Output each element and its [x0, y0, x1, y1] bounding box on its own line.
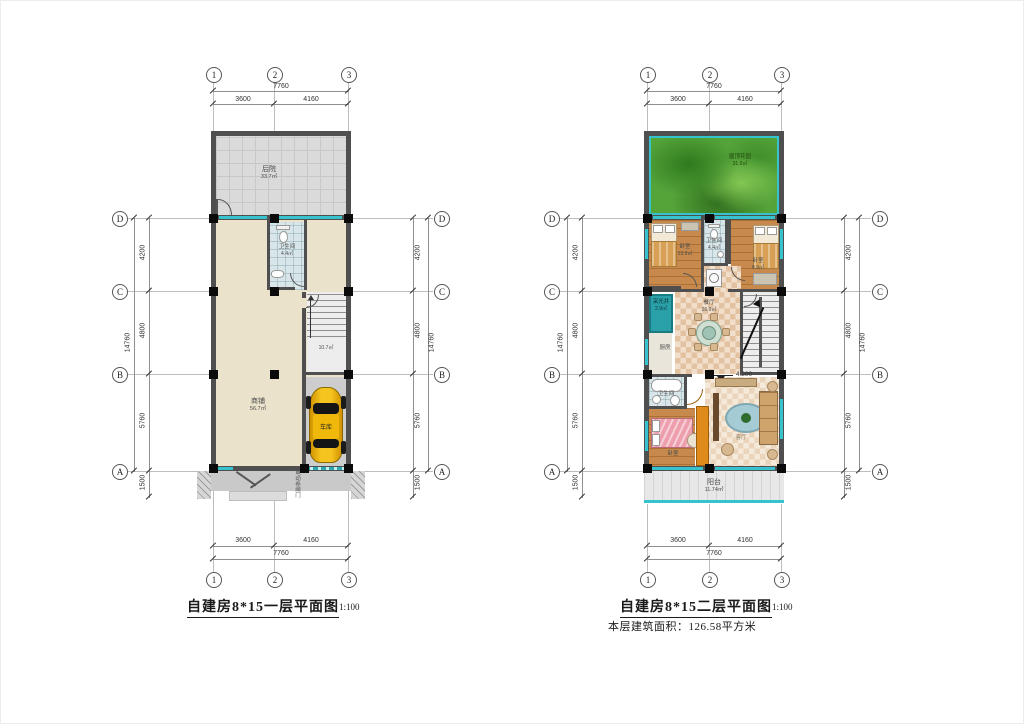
armchair [721, 443, 734, 456]
chair [694, 343, 702, 351]
dim-text: 14760 [429, 328, 436, 358]
ground-hatch [351, 471, 365, 499]
chair [688, 328, 696, 336]
kitchen-floor [649, 333, 672, 374]
chair [710, 343, 718, 351]
grid-line [559, 218, 644, 219]
grid-bubble-row: B [872, 367, 888, 383]
dim-line [213, 91, 349, 92]
grid-line [781, 504, 782, 572]
car-wheel [341, 441, 346, 454]
dim-text: 3600 [670, 96, 686, 103]
wall [211, 131, 216, 471]
toilet-bowl [279, 231, 288, 243]
structural-column [209, 464, 218, 473]
car-roof: 车库 [313, 414, 339, 439]
window [715, 467, 775, 470]
porch [211, 471, 351, 491]
dim-text: 4200 [573, 238, 580, 268]
grid-bubble-row: A [434, 464, 450, 480]
structural-column [344, 464, 353, 473]
grid-bubble-row: A [544, 464, 560, 480]
garage-label: 车库 [320, 422, 332, 431]
wall [267, 220, 270, 290]
entry-step [229, 491, 287, 501]
structural-column [777, 464, 786, 473]
car-wheel [341, 396, 346, 409]
structural-column [270, 214, 279, 223]
window [219, 216, 267, 219]
window [218, 467, 233, 470]
room-label-bath1: 卫生间 4.4㎡ [706, 238, 723, 252]
car-wheel [306, 441, 311, 454]
grid-bubble-col: 1 [640, 572, 656, 588]
grid-bubble-col: 1 [206, 572, 222, 588]
wall [704, 263, 725, 266]
backyard-floor [216, 136, 346, 216]
dim-text: 5760 [140, 406, 147, 436]
wall [644, 131, 649, 471]
dim-line [149, 218, 150, 498]
window [653, 216, 701, 219]
dim-text: 4160 [737, 96, 753, 103]
structural-column [300, 464, 309, 473]
dim-text: 5760 [846, 406, 853, 436]
room-label-bath: 卫生间 4.4㎡ [279, 244, 296, 258]
grid-bubble-row: D [434, 211, 450, 227]
wall [728, 220, 731, 264]
wardrobe [681, 222, 699, 231]
car-rear-window [313, 439, 339, 448]
dim-text: 7760 [273, 83, 289, 90]
grid-bubble-row: A [872, 464, 888, 480]
room-label-lightwell: 采光井 2.9㎡ [653, 299, 670, 313]
structural-column [643, 370, 652, 379]
sink [717, 251, 724, 258]
grid-bubble-row: D [872, 211, 888, 227]
plant [741, 413, 751, 423]
dim-text: 4800 [415, 316, 422, 346]
floor-plan-sheet: 7760 3600 4160 3600 4160 7760 4200 4800 … [0, 0, 1024, 724]
grid-line [784, 374, 871, 375]
dim-text: 4160 [303, 537, 319, 544]
level-marker-line [711, 375, 733, 376]
armchair [767, 381, 778, 392]
dim-text: 7760 [706, 550, 722, 557]
structural-column [209, 214, 218, 223]
tv-cabinet [713, 393, 719, 441]
room-label-stair: 10.7㎡ [319, 345, 334, 352]
dim-line [567, 218, 568, 472]
dim-text: 3600 [235, 96, 251, 103]
window [715, 216, 775, 219]
grid-line [127, 291, 211, 292]
plan2-title: 自建房8*15二层平面图 [620, 596, 772, 618]
grid-bubble-row: C [434, 284, 450, 300]
dim-line [582, 218, 583, 498]
dim-text: 3600 [670, 537, 686, 544]
grid-line [351, 218, 433, 219]
wall [728, 289, 784, 292]
pillow [767, 227, 777, 235]
dim-text: 14760 [860, 328, 867, 358]
pillow [653, 225, 663, 233]
balcony-railing [644, 500, 784, 503]
dim-line [213, 559, 349, 560]
structural-column [705, 370, 714, 379]
dim-text: 3600 [235, 537, 251, 544]
structural-column [344, 370, 353, 379]
grid-bubble-row: C [544, 284, 560, 300]
dim-tick [579, 493, 586, 500]
grid-bubble-row: C [872, 284, 888, 300]
grid-bubble-col: 3 [341, 67, 357, 83]
chair [694, 313, 702, 321]
dim-text: 4800 [573, 316, 580, 346]
toilet [708, 224, 720, 228]
room-label-bed3: 卧室 [667, 451, 678, 458]
pillow [665, 225, 675, 233]
window [651, 467, 703, 470]
structural-column [705, 287, 714, 296]
room-label-bed1: 卧室 13.9㎡ [678, 244, 693, 258]
wall [644, 289, 704, 292]
wall [740, 292, 743, 374]
grid-bubble-col: 2 [267, 572, 283, 588]
armchair [767, 449, 778, 460]
room-label-kitchen: 厨房 [659, 345, 670, 352]
room-label-bath2: 卫生间 [658, 391, 675, 398]
wall [211, 131, 351, 136]
structural-column [344, 287, 353, 296]
structural-column [643, 214, 652, 223]
structural-column [270, 287, 279, 296]
wall [649, 286, 681, 289]
pillow [652, 420, 660, 432]
grid-bubble-col: 3 [774, 572, 790, 588]
window [780, 229, 783, 259]
wall [346, 131, 351, 471]
grid-line [351, 291, 433, 292]
dim-line [647, 104, 782, 105]
grid-bubble-col: 1 [640, 67, 656, 83]
grid-line [559, 374, 644, 375]
grid-line [709, 504, 710, 572]
dim-text: 4800 [846, 316, 853, 346]
room-label-balcony: 阳台 11.74㎡ [705, 478, 724, 494]
dim-tick [146, 493, 153, 500]
roof-garden [649, 136, 779, 215]
dim-line [134, 218, 135, 472]
room-label-roof-garden: 屋顶花园 31.0㎡ [729, 154, 751, 168]
dim-text: 4160 [303, 96, 319, 103]
dim-text: 4200 [415, 238, 422, 268]
structural-column [777, 214, 786, 223]
car-wheel [306, 396, 311, 409]
plan2-scale: 1:100 [772, 602, 793, 612]
room-label-living: 客厅 [735, 435, 746, 442]
plan2-area-note: 本层建筑面积：126.58平方米 [608, 618, 756, 634]
chair [722, 328, 730, 336]
pillow [755, 227, 765, 235]
wardrobe-orange [696, 406, 709, 466]
plan1-title: 自建房8*15一层平面图 [187, 596, 339, 618]
wall [304, 220, 307, 290]
dim-text: 5760 [415, 406, 422, 436]
door-swing-arc [687, 389, 703, 405]
wall [701, 220, 704, 289]
wall [302, 372, 348, 375]
plan1-scale: 1:100 [339, 602, 360, 612]
room-label-backyard: 后院 33.7㎡ [261, 165, 277, 181]
grid-bubble-row: B [544, 367, 560, 383]
grid-bubble-row: B [434, 367, 450, 383]
grid-bubble-row: D [112, 211, 128, 227]
level-mark-text: 4.200 [736, 371, 752, 378]
dresser [753, 273, 777, 285]
dim-line [647, 559, 782, 560]
grid-bubble-row: C [112, 284, 128, 300]
grid-bubble-row: D [544, 211, 560, 227]
toilet [276, 225, 290, 230]
grid-line [127, 218, 211, 219]
window [278, 216, 342, 219]
window [645, 339, 648, 365]
window [780, 399, 783, 439]
grid-line [784, 291, 871, 292]
car-windshield [313, 403, 339, 414]
dim-line [213, 546, 349, 547]
room-label-dining: 餐厅 26.9㎡ [702, 300, 717, 314]
dim-text: 7760 [273, 550, 289, 557]
dim-text: 4160 [737, 537, 753, 544]
wall [649, 406, 687, 409]
structural-column [270, 370, 279, 379]
structural-column [643, 287, 652, 296]
garage-rolling-door [305, 467, 345, 470]
ground-hatch [197, 471, 211, 499]
grid-line [127, 374, 211, 375]
sink [271, 270, 284, 278]
grid-bubble-col: 3 [774, 67, 790, 83]
dim-text: 7760 [706, 83, 722, 90]
dim-text: 14760 [558, 328, 565, 358]
wall [644, 131, 784, 136]
dining-table-center [702, 326, 716, 340]
sofa [759, 391, 778, 445]
structural-column [344, 214, 353, 223]
grid-bubble-col: 3 [341, 572, 357, 588]
pillow [652, 434, 660, 446]
grid-line [559, 291, 644, 292]
structural-column [209, 287, 218, 296]
washer-drum [709, 273, 719, 283]
structural-column [643, 464, 652, 473]
dim-line [213, 104, 349, 105]
window [645, 229, 648, 259]
structural-column [705, 464, 714, 473]
window [645, 421, 648, 451]
grid-line [351, 374, 433, 375]
chair [710, 313, 718, 321]
structural-column [777, 370, 786, 379]
grid-bubble-col: 2 [702, 572, 718, 588]
grid-bubble-col: 2 [267, 67, 283, 83]
grid-bubble-row: B [112, 367, 128, 383]
structural-column [705, 214, 714, 223]
garage-door-note: 电动卷闸门 [294, 470, 300, 500]
dim-line [647, 91, 782, 92]
dim-text: 4200 [846, 238, 853, 268]
blanket [651, 241, 677, 267]
cabinet [715, 378, 757, 387]
grid-bubble-col: 2 [702, 67, 718, 83]
room-label-bed2: 卧室 8.9㎡ [752, 258, 764, 272]
structural-column [777, 287, 786, 296]
structural-column [209, 370, 218, 379]
grid-bubble-row: A [112, 464, 128, 480]
room-label-shop: 商铺 56.7㎡ [250, 397, 266, 413]
dim-text: 14760 [125, 328, 132, 358]
grid-bubble-col: 1 [206, 67, 222, 83]
dim-text: 5760 [573, 406, 580, 436]
dim-text: 4200 [140, 238, 147, 268]
dim-line [647, 546, 782, 547]
grid-line [647, 504, 648, 572]
dim-text: 4800 [140, 316, 147, 346]
